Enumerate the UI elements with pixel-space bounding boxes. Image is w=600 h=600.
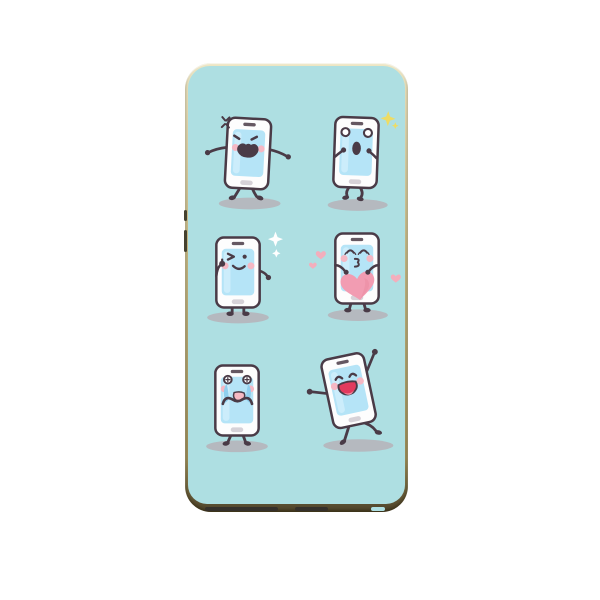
white-sparkle-icons bbox=[268, 232, 283, 258]
side-button-top bbox=[184, 210, 188, 221]
character-shocked-phone bbox=[306, 109, 405, 226]
character-crying-phone bbox=[188, 357, 287, 474]
ground-shadow bbox=[323, 439, 393, 452]
ground-shadow bbox=[206, 441, 268, 453]
bottom-port-left-icon bbox=[205, 507, 278, 511]
ground-shadow bbox=[328, 199, 388, 211]
character-kissing-phone bbox=[307, 225, 405, 342]
product-photo bbox=[0, 0, 600, 600]
ground-shadow bbox=[219, 198, 281, 210]
ground-shadow bbox=[207, 312, 269, 324]
character-winking-phone bbox=[188, 229, 288, 346]
bottom-port-center-icon bbox=[295, 507, 328, 511]
yellow-sparkle-icon bbox=[380, 111, 399, 129]
side-button-bottom bbox=[184, 230, 188, 252]
ground-shadow bbox=[328, 309, 388, 321]
phone-case bbox=[185, 63, 408, 512]
case-print bbox=[188, 66, 405, 504]
headphone-jack-icon bbox=[371, 507, 385, 511]
character-dancing-phone bbox=[300, 347, 400, 464]
character-angry-phone bbox=[198, 110, 298, 227]
